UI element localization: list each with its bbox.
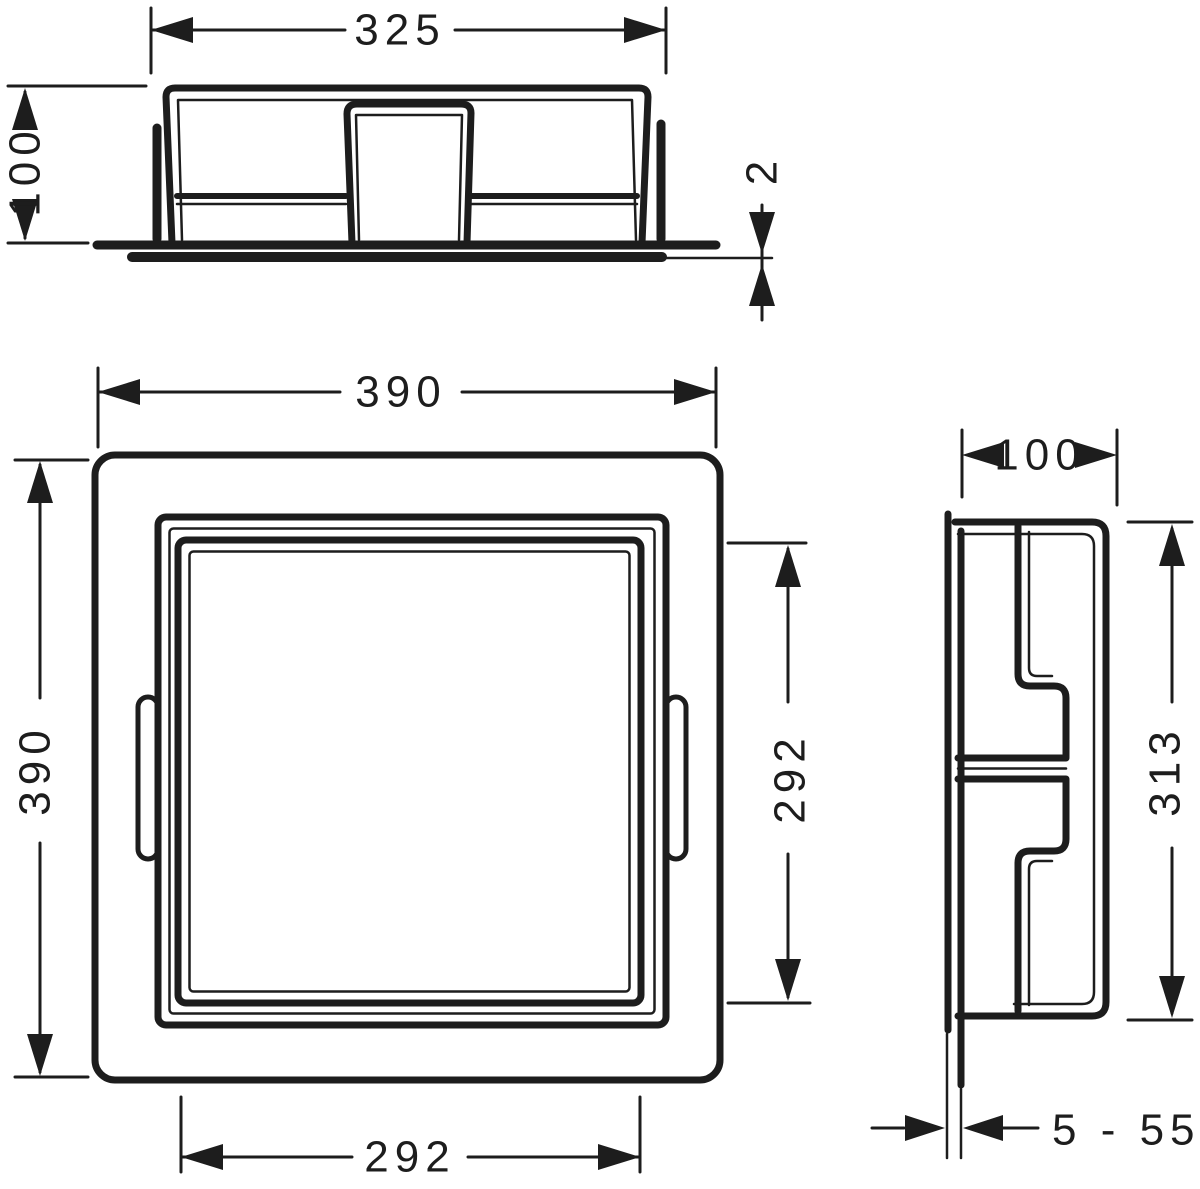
dim-side-height-arrow-up — [1159, 524, 1185, 566]
dim-front-opening-width-label: 292 — [364, 1133, 455, 1182]
dim-front-outer-width-label: 390 — [355, 368, 446, 417]
front-view-middle-frame — [158, 517, 666, 1025]
dim-front-outer-width-arrow-right — [674, 379, 716, 405]
dim-front-outer-width-arrow-left — [98, 379, 140, 405]
front-view-inner-opening-thin — [190, 552, 630, 992]
dim-side-tile-range-arrow-right-pointing — [905, 1115, 945, 1141]
dim-side-tile-range-arrow-left-pointing — [963, 1115, 1003, 1141]
dim-front-opening-width-arrow-right — [598, 1144, 640, 1170]
front-view-inner-opening — [178, 540, 641, 1003]
front-view-middle-frame-thin — [170, 529, 655, 1014]
side-view-step-lower — [1018, 780, 1066, 1011]
dim-frame-thickness: 2 — [738, 155, 787, 320]
side-view: 100 313 5 - 55 — [872, 430, 1200, 1158]
dim-side-depth: 100 — [962, 430, 1117, 505]
dim-side-tile-range: 5 - 55 — [872, 1106, 1200, 1155]
dim-frame-thickness-label: 2 — [738, 155, 787, 185]
side-view-step-lower-thin — [1029, 861, 1052, 1005]
dim-front-outer-width: 390 — [98, 368, 716, 448]
top-view: 325 100 2 — [1, 6, 787, 321]
dim-front-opening-width-arrow-left — [181, 1144, 223, 1170]
dim-front-opening-height-arrow-up — [775, 545, 801, 587]
dim-top-width-arrow-right — [624, 17, 666, 43]
dim-top-height-label: 100 — [1, 125, 50, 216]
dim-front-opening-height-arrow-down — [775, 959, 801, 1001]
dim-front-outer-height-label: 390 — [11, 724, 60, 815]
dim-side-height-label: 313 — [1141, 725, 1190, 816]
dim-top-height: 100 — [1, 86, 147, 243]
dim-frame-thickness-arrow-up — [749, 264, 775, 306]
dim-side-height-arrow-down — [1159, 976, 1185, 1018]
dim-front-outer-height: 390 — [11, 460, 89, 1077]
dim-top-width-label: 325 — [354, 6, 445, 55]
dim-front-outer-height-arrow-down — [27, 1034, 53, 1076]
dim-side-height: 313 — [1128, 522, 1192, 1020]
top-view-housing-inner-lines — [178, 100, 636, 240]
dim-top-height-arrow-up — [12, 88, 38, 130]
dim-front-outer-height-arrow-up — [27, 461, 53, 503]
technical-drawing: 325 100 2 — [0, 0, 1200, 1189]
dim-front-opening-width: 292 — [181, 1097, 640, 1182]
dim-front-opening-height: 292 — [728, 543, 815, 1003]
dim-top-width-arrow-left — [151, 17, 193, 43]
front-view: 390 390 292 292 — [11, 368, 815, 1182]
dim-side-tile-range-label: 5 - 55 — [1052, 1106, 1200, 1155]
dim-side-depth-label: 100 — [994, 431, 1085, 480]
top-view-housing-outline — [166, 88, 648, 243]
dim-front-opening-height-label: 292 — [766, 732, 815, 823]
top-view-bracket-outline — [347, 104, 471, 243]
top-view-bracket-inner-lines — [356, 115, 462, 240]
side-view-step-upper-thin — [1029, 532, 1052, 676]
side-view-step-upper — [1018, 526, 1066, 757]
dim-top-width: 325 — [151, 6, 666, 74]
dim-frame-thickness-arrow-down — [749, 212, 775, 254]
